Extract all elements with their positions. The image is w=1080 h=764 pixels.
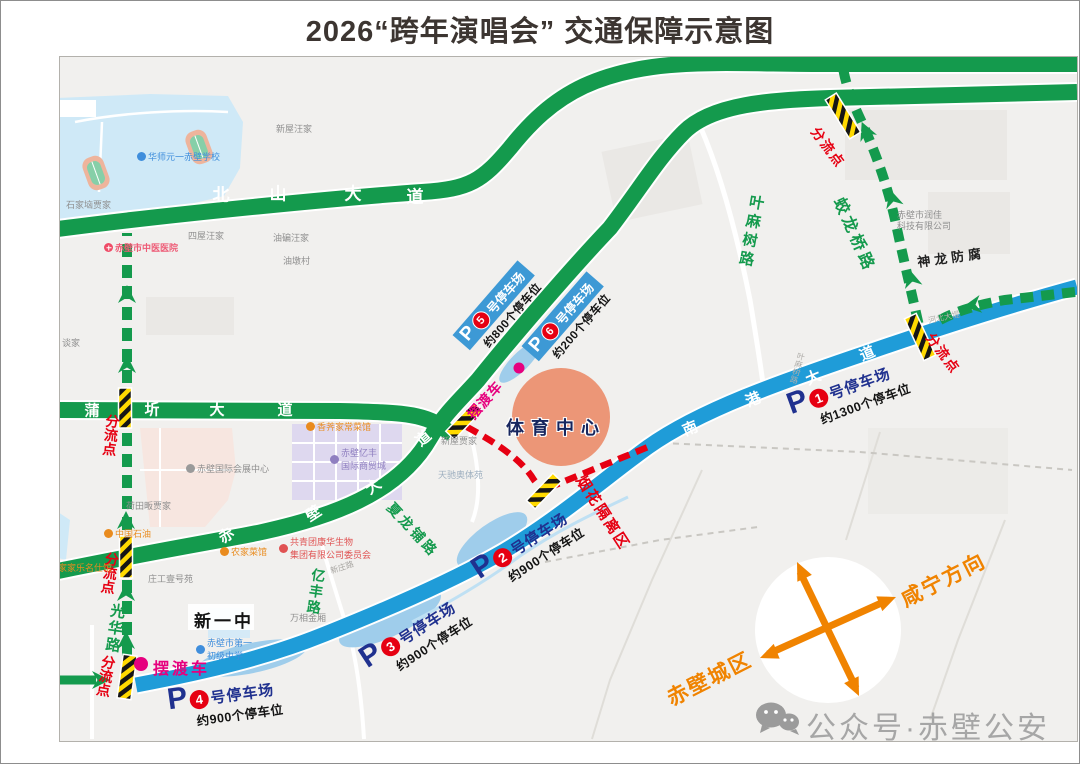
poi-label: 荷田畈贾家: [126, 499, 171, 512]
school-icon: [196, 645, 205, 654]
road-label-char: 大: [209, 399, 224, 420]
poi-label: 天驰奥体苑: [438, 468, 483, 481]
road-label-char: 蒲: [84, 400, 99, 421]
school-icon: [137, 152, 146, 161]
page-title: 2026“跨年演唱会” 交通保障示意图: [0, 8, 1080, 50]
poi-label-restaurant: 家家乐名仕馆: [59, 561, 112, 574]
poi-label: 油墩村: [283, 254, 310, 267]
road-label-char: 圻: [144, 399, 159, 420]
parking-p-glyph: P: [166, 686, 189, 713]
road-label-char: 道: [277, 399, 292, 420]
traffic-map: 北 山 大 道 蒲 圻 大 道 赤 壁 大 道 南 港 大 道 叶麻树路 蛟龙桥…: [59, 56, 1078, 742]
poi-label-school: 赤壁市第一初级中学: [196, 636, 252, 662]
poi-label-hospital: 赤壁市中医医院: [104, 241, 178, 254]
poi-label-restaurant: 香荠家常菜馆: [306, 420, 371, 433]
restaurant-icon: [306, 422, 315, 431]
poi-label-company: 共青团康华生物集团有限公司委员会: [279, 535, 371, 561]
poi-label: 新屋贾家: [441, 434, 477, 447]
shuttle-dot: [134, 657, 148, 671]
poi-label-petro: 中国石油: [104, 527, 151, 540]
poi-label-mall: 赤壁亿丰国际商贸城: [330, 446, 386, 472]
gas-station-icon: [104, 529, 113, 538]
parking-number-badge: 4: [189, 689, 210, 710]
company-icon: [279, 544, 288, 553]
poi-label: 四屋汪家: [188, 229, 224, 242]
poi-label-exhibition: 赤壁国际会展中心: [186, 462, 269, 475]
poi-label: 谈家: [62, 336, 80, 349]
poi-label: 庄工壹号苑: [148, 572, 193, 585]
map-canvas: 北 山 大 道 蒲 圻 大 道 赤 壁 大 道 南 港 大 道 叶麻树路 蛟龙桥…: [59, 56, 1078, 742]
road-label-char: 北: [213, 181, 230, 206]
poi-label-school: 华师元一赤壁学校: [137, 150, 220, 163]
compass: [755, 557, 901, 703]
poi-label-restaurant: 农家菜馆: [220, 545, 267, 558]
restaurant-icon: [220, 547, 229, 556]
poi-label: 油碥汪家: [273, 231, 309, 244]
xinyizhong-label: 新一中: [194, 607, 254, 632]
poi-icon: [186, 464, 195, 473]
road-label-char: 山: [270, 180, 287, 205]
barrier-southwest: [117, 654, 137, 700]
poi-label: 新屋汪家: [276, 122, 312, 135]
road-label-char: 大: [345, 180, 362, 205]
wechat-icon: [756, 703, 799, 736]
poi-label-company: 赤壁市润佳科技有限公司: [897, 210, 951, 233]
watermark-text: 公众号·赤壁公安: [806, 703, 1050, 742]
hospital-icon: [104, 243, 113, 252]
poi-label: 万相金厢: [290, 611, 326, 624]
shuttle-dot: [514, 363, 525, 374]
road-label-char: 道: [407, 183, 424, 208]
mall-icon: [330, 455, 339, 464]
poi-label: 石家垴贾家: [66, 198, 111, 211]
sports-center-label: 体育中心: [506, 414, 606, 440]
